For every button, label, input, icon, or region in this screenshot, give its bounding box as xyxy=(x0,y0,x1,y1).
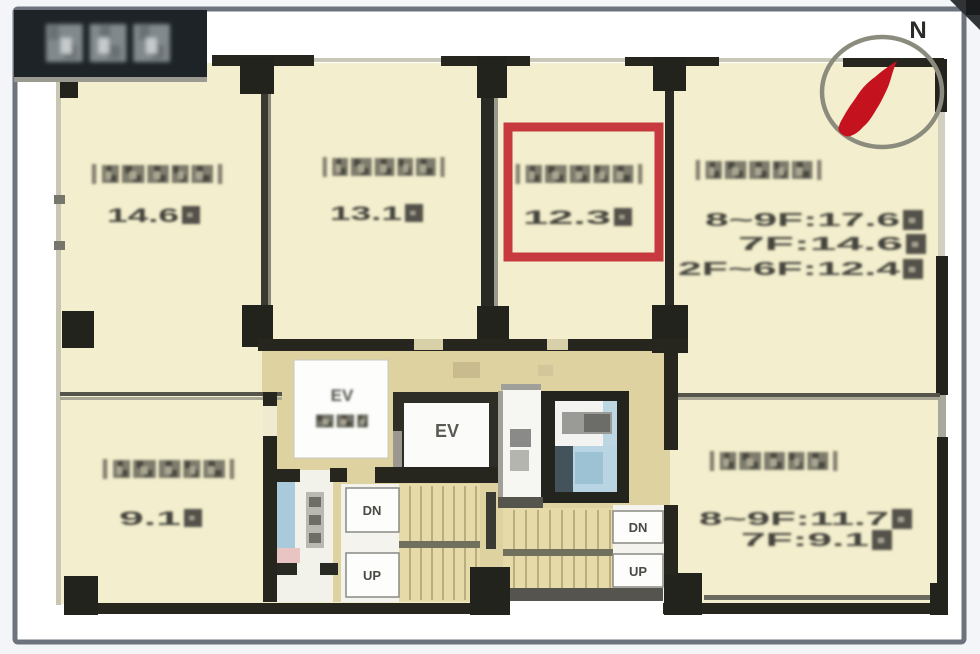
svg-text:7F:9.1: 7F:9.1 xyxy=(741,530,869,550)
svg-text:13.1: 13.1 xyxy=(330,204,403,225)
svg-text:DN: DN xyxy=(629,520,648,535)
svg-text:9.1: 9.1 xyxy=(119,509,182,530)
svg-text:12.3: 12.3 xyxy=(523,208,611,229)
svg-text:UP: UP xyxy=(363,568,381,583)
svg-text:N: N xyxy=(909,17,926,44)
svg-text:2F~6F:12.4: 2F~6F:12.4 xyxy=(678,259,900,279)
svg-text:8~9F:11.7: 8~9F:11.7 xyxy=(699,509,889,529)
svg-text:DN: DN xyxy=(363,503,382,518)
svg-text:EV: EV xyxy=(435,421,459,441)
svg-text:7F:14.6: 7F:14.6 xyxy=(738,234,903,254)
svg-text:EV: EV xyxy=(331,386,354,405)
svg-text:UP: UP xyxy=(629,564,647,579)
svg-text:8~9F:17.6: 8~9F:17.6 xyxy=(705,210,900,230)
svg-text:14.6: 14.6 xyxy=(107,206,179,227)
